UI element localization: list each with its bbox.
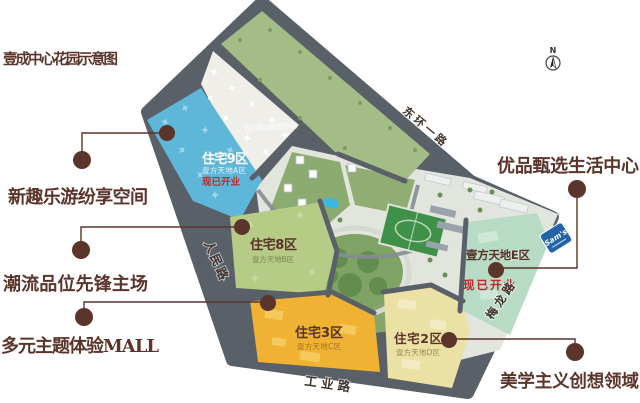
- zone3-name: 住宅3区: [295, 325, 343, 341]
- callout-theme-mall: 多元主题体验MALL: [1, 335, 159, 357]
- zone9-name: 住宅9区: [202, 151, 248, 167]
- site-plan-map: 仅为意向规划示意 住宅9区 壹方天地A区 现已开业 住宅8区 壹方天地B区: [0, 0, 640, 403]
- compass-north-label: N: [550, 46, 557, 55]
- zone2-name: 住宅2区: [394, 331, 442, 346]
- zoneE-name: 壹方天地E区: [466, 248, 531, 262]
- callout-play-space: 新趣乐游纷享空间: [8, 186, 148, 208]
- zone9-subtitle: 壹方天地A区: [202, 165, 247, 175]
- zone-E-area: 壹方天地E区 现已开业: [462, 213, 549, 335]
- site-plan-page: 仅为意向规划示意 住宅9区 壹方天地A区 现已开业 住宅8区 壹方天地B区: [0, 0, 640, 403]
- callout-trend-arena: 潮流品位先锋主场: [3, 273, 148, 295]
- zone8-name: 住宅8区: [250, 237, 297, 253]
- page-title: 壹成中心花园示意图: [3, 50, 118, 68]
- zone9-status: 现已开业: [202, 176, 240, 188]
- zone-8-area: 住宅8区 壹方天地B区: [230, 202, 336, 294]
- callout-aesthetic-realm: 美学主义创想领域: [500, 371, 640, 392]
- callout-life-center: 优品甄选生活中心: [497, 155, 639, 177]
- zone3-subtitle: 壹方天地C区: [297, 341, 342, 351]
- zone2-subtitle: 壹方天地D区: [396, 347, 441, 357]
- zone8-subtitle: 壹方天地B区: [252, 254, 295, 264]
- compass-icon: N: [546, 46, 560, 70]
